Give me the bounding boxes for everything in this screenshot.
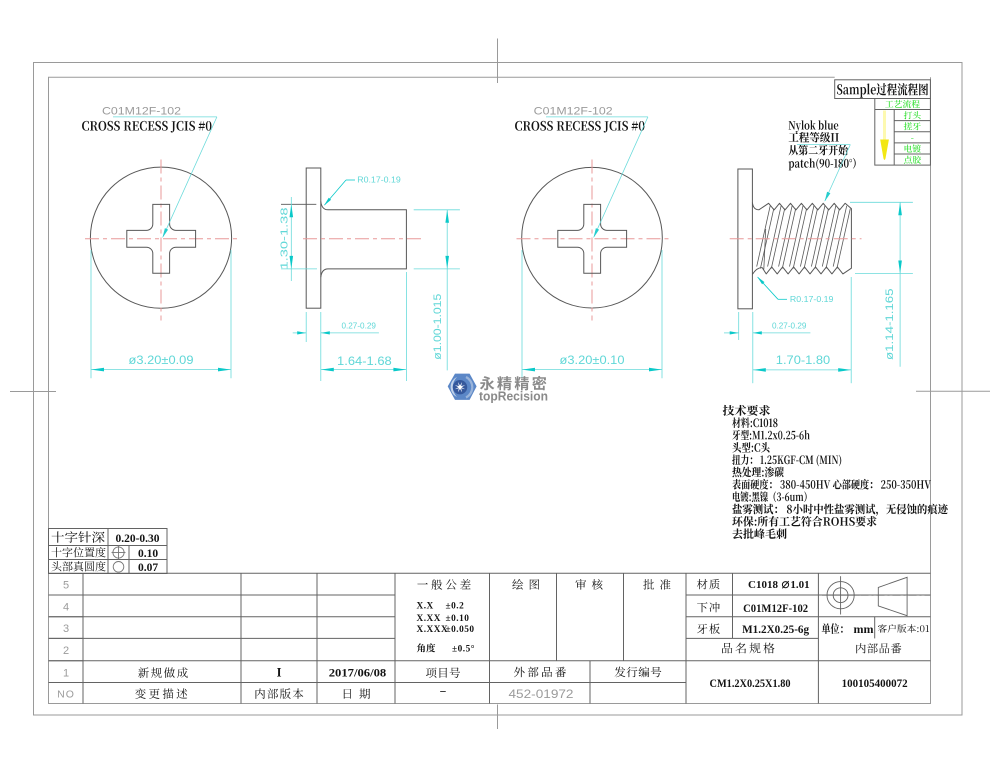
svg-text:1.30-1.38: 1.30-1.38 [279,207,291,269]
svg-text:0.20-0.30: 0.20-0.30 [115,533,159,545]
svg-text:2: 2 [63,645,69,657]
svg-text:X.XX: X.XX [417,614,441,624]
svg-text:±0.050: ±0.050 [446,625,475,635]
svg-text:X.X: X.X [417,602,434,612]
svg-text:452-01972: 452-01972 [509,689,574,701]
svg-text:C1018: C1018 [748,579,778,591]
svg-text:5: 5 [63,580,69,592]
svg-text:NO: NO [57,689,75,701]
svg-text:1.70-1.80: 1.70-1.80 [776,353,831,367]
svg-text:ø1.14-1.165: ø1.14-1.165 [884,288,896,360]
svg-text:4: 4 [63,601,69,613]
svg-text:mm: mm [854,622,874,636]
svg-text:±0.5°: ±0.5° [452,644,475,655]
svg-text:3: 3 [63,623,69,635]
svg-text:I: I [277,666,282,680]
svg-text:100105400072: 100105400072 [842,678,908,690]
svg-text:X.XXX: X.XXX [417,625,449,635]
svg-text:1.64-1.68: 1.64-1.68 [337,354,392,368]
svg-text:0.07: 0.07 [138,562,158,574]
svg-text:R0.17-0.19: R0.17-0.19 [790,294,834,304]
svg-text:C01M12F-102: C01M12F-102 [102,106,181,118]
svg-text:C01M12F-102: C01M12F-102 [534,106,613,118]
svg-text:CM1.2X0.25X1.80: CM1.2X0.25X1.80 [710,676,791,690]
svg-text:2017/06/08: 2017/06/08 [329,666,387,680]
svg-text:C01M12F-102: C01M12F-102 [743,603,808,615]
svg-text:−: − [440,685,447,699]
svg-text:0.27-0.29: 0.27-0.29 [772,321,807,331]
svg-text:1.01: 1.01 [790,579,809,591]
svg-text:0.10: 0.10 [138,548,158,560]
svg-text:topRecision: topRecision [479,389,548,404]
svg-text:ø3.20±0.09: ø3.20±0.09 [129,353,194,367]
svg-text:R0.17-0.19: R0.17-0.19 [357,174,401,184]
svg-text:±0.2: ±0.2 [446,602,465,612]
svg-text:M1.2X0.25-6g: M1.2X0.25-6g [742,624,809,636]
svg-text:ø3.20±0.10: ø3.20±0.10 [560,353,625,367]
svg-text:ø1.00-1.015: ø1.00-1.015 [432,294,444,360]
svg-text:1: 1 [63,667,69,679]
svg-text:±0.10: ±0.10 [446,614,470,624]
svg-text:0.27-0.29: 0.27-0.29 [341,321,376,331]
